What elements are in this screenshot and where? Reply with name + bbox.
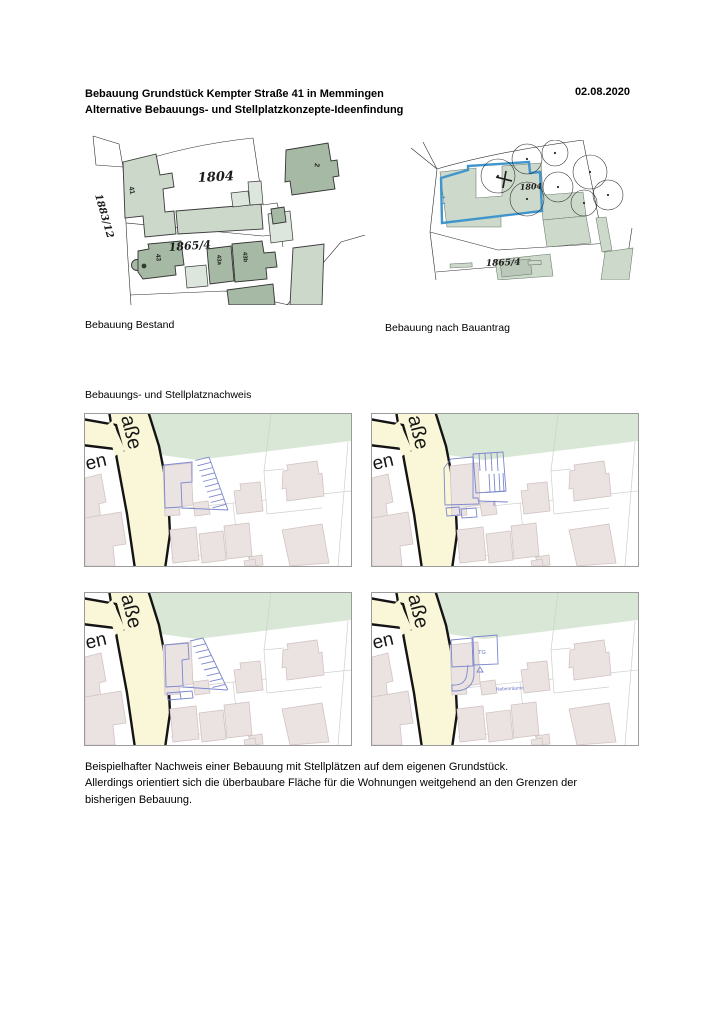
caption-bauantrag: Bebauung nach Bauantrag — [385, 322, 510, 334]
label-parcel-1865: 1865/4 — [486, 258, 521, 269]
paragraph-line-3: bisherigen Bebauung. — [85, 792, 650, 808]
label-parcel-1804: 1804 — [197, 169, 234, 186]
document-page: Bebauung Grundstück Kempter Straße 41 in… — [0, 0, 723, 1023]
closing-paragraph: Beispielhafter Nachweis einer Bebauung m… — [85, 759, 650, 808]
doc-date: 02.08.2020 — [500, 86, 630, 98]
doc-subtitle: Alternative Bebauungs- und Stellplatzkon… — [85, 102, 403, 118]
map-variant-tiefgarage: TG Nebenräume — [371, 592, 639, 746]
map-variant-parking-row-1 — [84, 413, 352, 567]
map-variant-parking-court — [371, 413, 639, 567]
label-parcel-1804: 1804 — [520, 181, 543, 192]
document-header: Bebauung Grundstück Kempter Straße 41 in… — [85, 86, 403, 118]
building-43a — [207, 246, 234, 284]
label-tg: TG — [478, 650, 486, 656]
doc-title: Bebauung Grundstück Kempter Straße 41 in… — [85, 86, 403, 102]
map-bebauung-nach-bauantrag: 1804 1865/4 — [400, 140, 640, 280]
label-house-43: 43 — [154, 254, 162, 262]
map-variant-parking-row-2 — [84, 592, 352, 746]
paragraph-line-1: Beispielhafter Nachweis einer Bebauung m… — [85, 759, 650, 775]
caption-bestand: Bebauung Bestand — [85, 319, 174, 331]
paragraph-line-2: Allerdings orientiert sich die überbauba… — [85, 775, 650, 791]
label-house-43a: 43a — [215, 255, 222, 266]
label-house-43b: 43b — [241, 252, 248, 263]
section-label: Bebauungs- und Stellplatznachweis — [85, 389, 251, 401]
map-bebauung-bestand: 1804 1865/4 1883/12 41 2 43 43a 43b — [85, 135, 365, 305]
